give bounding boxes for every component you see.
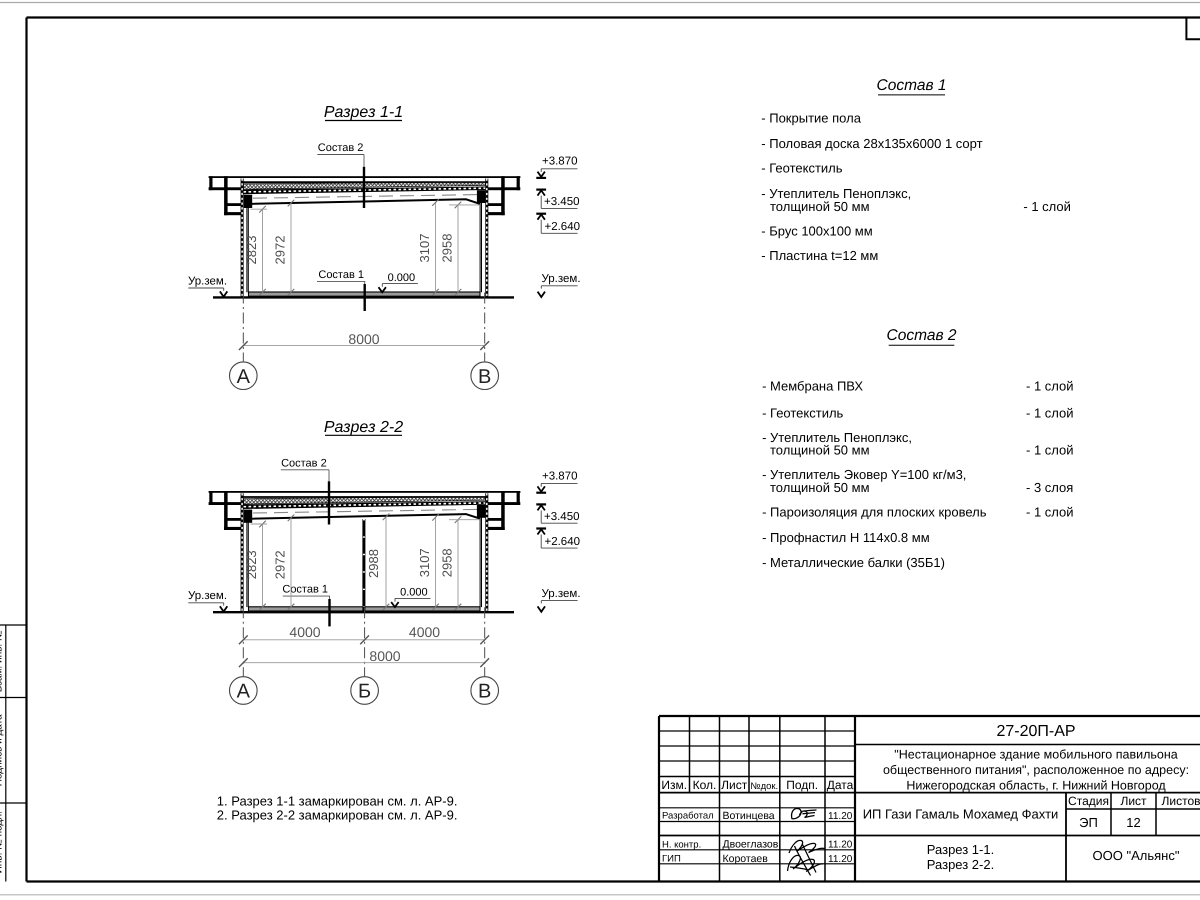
svg-text:Состав 1: Состав 1 <box>877 77 947 94</box>
svg-text:2972: 2972 <box>273 236 288 265</box>
svg-text:толщиной 50 мм: толщиной 50 мм <box>770 442 870 457</box>
svg-text:"Нестационарное здание мобильн: "Нестационарное здание мобильного павиль… <box>894 748 1177 762</box>
svg-text:- 1 слой: - 1 слой <box>1026 406 1074 421</box>
svg-text:3107: 3107 <box>417 234 432 263</box>
svg-text:Подпись и дата: Подпись и дата <box>0 714 5 786</box>
svg-text:ООО "Альянс": ООО "Альянс" <box>1093 848 1180 863</box>
svg-text:11.20: 11.20 <box>828 811 853 822</box>
svg-text:В: В <box>478 681 491 703</box>
svg-text:Ур.зем.: Ур.зем. <box>542 588 581 600</box>
svg-text:В: В <box>478 366 491 388</box>
svg-text:11.20: 11.20 <box>828 854 853 865</box>
svg-text:Разработал: Разработал <box>662 811 714 822</box>
svg-text:Ур.зем.: Ур.зем. <box>188 590 227 602</box>
svg-text:2. Разрез 2-2 замаркирован см.: 2. Разрез 2-2 замаркирован см. л. АР-9. <box>217 808 458 823</box>
svg-text:Изм.: Изм. <box>661 778 687 792</box>
svg-text:+2.640: +2.640 <box>545 221 581 233</box>
svg-text:Разрез 2-2.: Разрез 2-2. <box>927 857 994 872</box>
svg-text:Разрез 2-2: Разрез 2-2 <box>324 419 403 436</box>
svg-text:Б: Б <box>358 681 371 703</box>
svg-text:2823: 2823 <box>244 550 259 579</box>
svg-text:Дата: Дата <box>827 778 854 792</box>
svg-text:- 1 слой: - 1 слой <box>1023 199 1071 214</box>
svg-text:1. Разрез 1-1 замаркирован см.: 1. Разрез 1-1 замаркирован см. л. АР-9. <box>217 794 458 809</box>
svg-text:27-20П-АР: 27-20П-АР <box>996 723 1075 740</box>
svg-text:Двоеглазов: Двоеглазов <box>723 839 779 851</box>
svg-text:12: 12 <box>1126 815 1140 830</box>
svg-text:2988: 2988 <box>366 549 381 578</box>
svg-text:- Геотекстиль: - Геотекстиль <box>761 161 842 176</box>
svg-text:толщиной 50 мм: толщиной 50 мм <box>770 199 870 214</box>
svg-text:- 1 слой: - 1 слой <box>1026 442 1074 457</box>
svg-text:Подп.: Подп. <box>786 778 818 792</box>
svg-text:- Покрытие пола: - Покрытие пола <box>761 110 861 125</box>
svg-text:- Пластина t=12 мм: - Пластина t=12 мм <box>761 248 878 263</box>
svg-text:Ур.зем.: Ур.зем. <box>188 275 227 287</box>
svg-text:толщиной 50 мм: толщиной 50 мм <box>770 480 870 495</box>
svg-text:ГИП: ГИП <box>662 854 681 865</box>
svg-text:Состав 2: Состав 2 <box>281 457 327 469</box>
svg-text:№док.: №док. <box>750 781 778 792</box>
svg-text:Вотинцева: Вотинцева <box>723 810 775 822</box>
svg-text:- Половая доска 28х135х6000 1: - Половая доска 28х135х6000 1 сорт <box>761 136 982 151</box>
svg-text:Состав 1: Состав 1 <box>282 584 328 596</box>
svg-text:+2.640: +2.640 <box>545 536 581 548</box>
svg-text:ИП Гази Гамаль Мохамед Фахти: ИП Гази Гамаль Мохамед Фахти <box>863 807 1059 822</box>
svg-text:Разрез 1-1.: Разрез 1-1. <box>927 842 994 857</box>
svg-text:4000: 4000 <box>409 624 440 640</box>
svg-text:- Пароизоляция для плоских кро: - Пароизоляция для плоских кровель <box>762 505 987 520</box>
svg-text:- Металлические балки (35Б1): - Металлические балки (35Б1) <box>762 555 945 570</box>
svg-text:общественного питания", распол: общественного питания", расположенное по… <box>883 763 1189 777</box>
svg-text:2958: 2958 <box>440 234 455 263</box>
svg-text:+3.450: +3.450 <box>544 196 580 208</box>
svg-text:8000: 8000 <box>369 648 400 664</box>
svg-text:Нижегородская область, г. Нижн: Нижегородская область, г. Нижний Новгоро… <box>906 778 1166 792</box>
svg-text:Инв. № подл.: Инв. № подл. <box>0 811 5 873</box>
svg-text:- 1 слой: - 1 слой <box>1026 379 1074 394</box>
svg-text:- Мембрана ПВХ: - Мембрана ПВХ <box>762 379 863 394</box>
svg-text:+3.870: +3.870 <box>542 470 578 482</box>
svg-text:2958: 2958 <box>440 548 455 577</box>
svg-text:Листов: Листов <box>1162 794 1200 808</box>
svg-text:Стадия: Стадия <box>1068 794 1109 808</box>
svg-text:Разрез 1-1: Разрез 1-1 <box>324 104 403 121</box>
svg-text:2823: 2823 <box>244 236 259 265</box>
svg-text:Н. контр.: Н. контр. <box>662 839 701 850</box>
svg-text:- 1 слой: - 1 слой <box>1026 505 1074 520</box>
svg-text:А: А <box>237 681 251 703</box>
svg-text:А: А <box>237 366 251 388</box>
svg-text:Кол.: Кол. <box>693 778 717 792</box>
svg-text:0.000: 0.000 <box>400 586 428 598</box>
svg-text:3107: 3107 <box>417 548 432 577</box>
svg-text:- Геотекстиль: - Геотекстиль <box>762 406 843 421</box>
svg-text:Состав 2: Состав 2 <box>318 142 364 154</box>
svg-text:+3.870: +3.870 <box>542 156 578 168</box>
svg-text:2972: 2972 <box>273 550 288 579</box>
svg-text:Состав 2: Состав 2 <box>887 327 957 344</box>
svg-text:4000: 4000 <box>289 624 320 640</box>
svg-text:8000: 8000 <box>348 331 379 347</box>
svg-text:- 3 слоя: - 3 слоя <box>1026 480 1073 495</box>
svg-text:Состав 1: Состав 1 <box>318 269 364 281</box>
svg-text:Лист: Лист <box>721 778 748 792</box>
svg-text:11.20: 11.20 <box>828 840 853 851</box>
svg-text:Взам. инв. №: Взам. инв. № <box>0 630 5 692</box>
svg-text:Коротаев: Коротаев <box>723 853 769 865</box>
svg-text:ЭП: ЭП <box>1079 815 1098 830</box>
svg-text:- Профнастил Н 114х0.8 мм: - Профнастил Н 114х0.8 мм <box>762 530 930 545</box>
svg-text:Ур.зем.: Ур.зем. <box>542 273 581 285</box>
svg-text:Лист: Лист <box>1120 794 1147 808</box>
svg-text:0.000: 0.000 <box>388 272 416 284</box>
svg-text:+3.450: +3.450 <box>544 511 580 523</box>
svg-text:- Брус 100х100 мм: - Брус 100х100 мм <box>761 224 872 239</box>
